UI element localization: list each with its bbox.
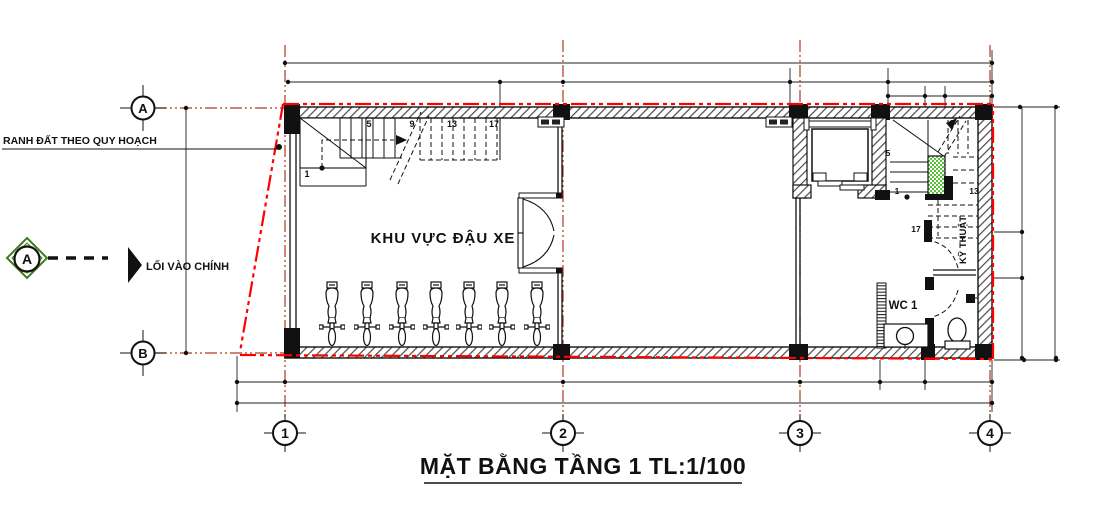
motorbike-row <box>319 282 550 346</box>
motorbike <box>319 282 345 346</box>
svg-text:1: 1 <box>281 425 289 441</box>
grid-bubble-A: A <box>120 85 166 131</box>
door-swing <box>932 241 958 268</box>
step-number: 5 <box>366 119 371 129</box>
entrance-label: LỐI VÀO CHÍNH <box>146 259 229 273</box>
partition-grid2 <box>558 120 562 345</box>
boundary-label: RANH ĐẤT THEO QUY HOẠCH <box>3 134 157 147</box>
svg-text:B: B <box>138 346 147 361</box>
title-block: MẶT BẰNG TẦNG 1 TL:1/100 <box>420 452 746 483</box>
step-number: 1 <box>304 169 309 179</box>
svg-text:A: A <box>138 101 148 116</box>
step-number: 13 <box>447 119 457 129</box>
door-swing <box>523 199 554 267</box>
grid-bubble-3: 3 <box>779 414 821 452</box>
step-number: 5 <box>886 148 891 158</box>
sink <box>897 328 914 345</box>
step-number: 13 <box>969 186 979 196</box>
wc1-label: WC 1 <box>889 300 918 312</box>
left-wall <box>290 118 296 344</box>
entrance-arrow-icon <box>128 247 142 283</box>
step-number: 9 <box>409 119 414 129</box>
motorbike <box>524 282 550 346</box>
door-leaf <box>518 233 523 268</box>
step-number: 17 <box>911 224 921 234</box>
grid-bubble-1: 1 <box>264 414 306 452</box>
section-marker: A <box>7 238 108 278</box>
stair-direction-arrow <box>396 135 407 145</box>
technical-room-label: KỸ THUẬT <box>957 216 969 264</box>
sheet-title: MẶT BẰNG TẦNG 1 TL:1/100 <box>420 452 746 479</box>
floor-plan-sheet: RANH ĐẤT THEO QUY HOẠCH A LỐI VÀO CHÍNH … <box>0 0 1109 522</box>
parking-area-label: KHU VỰC ĐẬU XE <box>371 229 516 247</box>
svg-text:3: 3 <box>796 425 804 441</box>
double-door <box>518 193 562 273</box>
toilet <box>948 318 966 342</box>
step-number: 1 <box>895 186 900 196</box>
motorbike <box>489 282 515 346</box>
grid-line <box>155 40 990 421</box>
step-number: 9 <box>950 118 955 128</box>
entrance-marker: LỐI VÀO CHÍNH <box>128 247 229 283</box>
stair-left <box>300 112 500 186</box>
motorbike <box>456 282 482 346</box>
elevator-door <box>840 185 864 190</box>
floor-plan-canvas: RANH ĐẤT THEO QUY HOẠCH A LỐI VÀO CHÍNH … <box>0 0 1109 522</box>
grid-bubble-B: B <box>120 330 166 376</box>
door-swing <box>932 290 958 317</box>
motorbike <box>389 282 415 346</box>
step-number: 17 <box>489 119 499 129</box>
grid-bubble-4: 4 <box>969 414 1011 452</box>
svg-text:2: 2 <box>559 425 567 441</box>
elevator <box>793 118 890 200</box>
door-leaf <box>518 198 523 233</box>
grid-bubble-2: 2 <box>542 414 584 452</box>
vent-box <box>966 294 975 303</box>
svg-text:4: 4 <box>986 425 994 441</box>
stair-core-green <box>928 156 945 196</box>
motorbike <box>354 282 380 346</box>
motorbike <box>423 282 449 346</box>
section-marker-label: A <box>22 251 32 267</box>
boundary-label-group: RANH ĐẤT THEO QUY HOẠCH <box>2 134 279 149</box>
grid-axis-lines <box>155 40 990 421</box>
right-wall <box>978 107 992 358</box>
